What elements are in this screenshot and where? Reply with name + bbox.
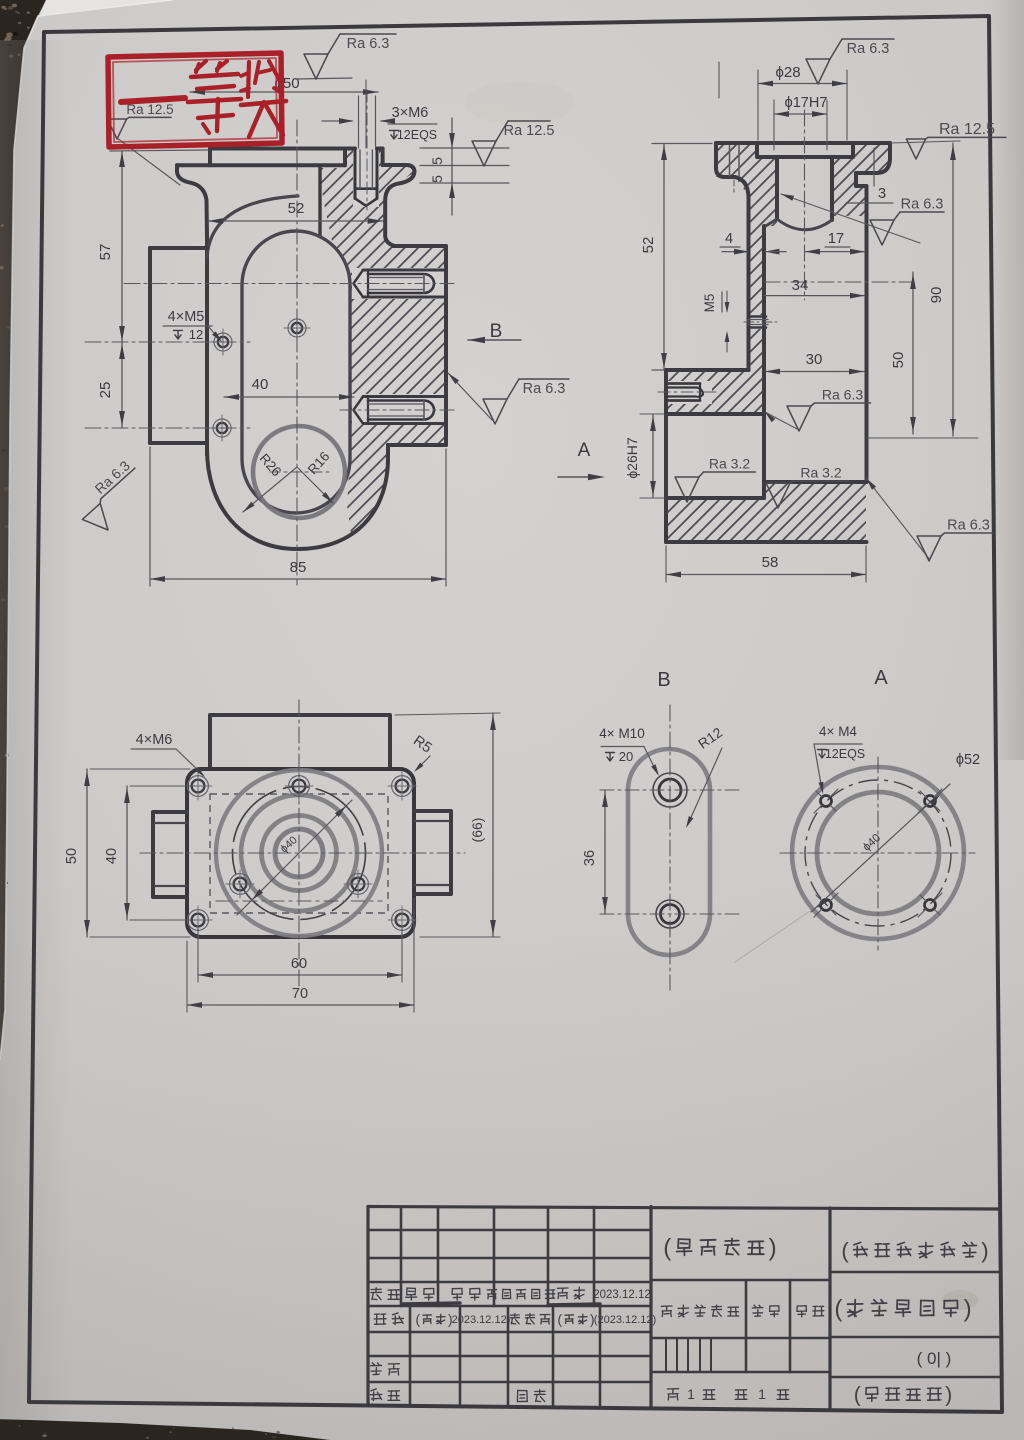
svg-text:Ra 6.3: Ra 6.3 (347, 36, 390, 52)
svg-text:ϕ26H7: ϕ26H7 (624, 437, 640, 479)
svg-text:36: 36 (582, 850, 598, 866)
svg-text:40: 40 (104, 848, 120, 864)
svg-text:20: 20 (619, 749, 633, 764)
svg-text:12: 12 (189, 327, 203, 342)
svg-text:5: 5 (429, 157, 445, 165)
svg-text:M5: M5 (702, 294, 717, 313)
svg-text:(: ( (841, 1238, 849, 1263)
svg-text:4× M4: 4× M4 (819, 724, 857, 739)
svg-text:3: 3 (878, 186, 886, 202)
svg-text:34: 34 (792, 277, 809, 294)
svg-text:4: 4 (725, 231, 733, 247)
svg-text:ϕ52: ϕ52 (956, 752, 980, 768)
svg-text:2023.12.12): 2023.12.12) (452, 1314, 511, 1326)
svg-text:17: 17 (828, 231, 844, 247)
svg-text:( 0| ): ( 0| ) (917, 1349, 952, 1368)
svg-text:58: 58 (762, 554, 779, 571)
svg-text:A: A (874, 667, 888, 689)
svg-text:90: 90 (928, 287, 945, 304)
svg-text:B: B (490, 321, 503, 342)
svg-text:50: 50 (64, 848, 80, 864)
svg-text:(: ( (854, 1384, 861, 1407)
svg-text:57: 57 (97, 244, 114, 261)
svg-text:Ra 12.5: Ra 12.5 (939, 121, 995, 138)
svg-text:Ra 6.3: Ra 6.3 (947, 518, 990, 534)
svg-text:4×M5: 4×M5 (168, 309, 205, 325)
svg-text:): ) (945, 1384, 952, 1407)
svg-text:4×M6: 4×M6 (136, 732, 173, 748)
svg-text:Ra 6.3: Ra 6.3 (901, 197, 944, 213)
svg-text:85: 85 (290, 559, 307, 576)
svg-text:Ra 6.3: Ra 6.3 (847, 41, 890, 57)
svg-text:3×M6: 3×M6 (392, 105, 429, 121)
svg-text:(: ( (834, 1296, 842, 1323)
svg-text:25: 25 (97, 382, 114, 399)
svg-text:ϕ17H7: ϕ17H7 (785, 95, 828, 111)
svg-text:2023.12.12: 2023.12.12 (593, 1289, 651, 1301)
svg-text:70: 70 (292, 986, 308, 1002)
svg-text:1: 1 (758, 1386, 766, 1402)
svg-text:(66): (66) (469, 818, 485, 843)
svg-text:Ra 6.3: Ra 6.3 (523, 381, 566, 397)
svg-text:4× M10: 4× M10 (599, 726, 644, 741)
svg-text:12EQS: 12EQS (825, 747, 865, 761)
svg-text:(2023.12.12): (2023.12.12) (594, 1314, 656, 1326)
svg-text:): ) (964, 1296, 972, 1323)
svg-text:1: 1 (687, 1386, 695, 1402)
svg-text:(: ( (557, 1312, 562, 1327)
svg-text:12EQS: 12EQS (397, 128, 437, 142)
svg-text:52: 52 (288, 200, 305, 217)
svg-text:(: ( (415, 1312, 420, 1327)
svg-text:(: ( (663, 1235, 671, 1262)
svg-text:B: B (657, 669, 670, 691)
svg-text:52: 52 (640, 237, 657, 254)
svg-text:60: 60 (291, 956, 307, 972)
svg-text:5: 5 (429, 175, 445, 183)
svg-text:Ra 12.5: Ra 12.5 (504, 123, 555, 139)
svg-text:A: A (578, 440, 591, 461)
svg-text:Ra 6.3: Ra 6.3 (822, 387, 863, 403)
svg-text:): ) (981, 1238, 988, 1263)
svg-text:): ) (769, 1235, 777, 1262)
svg-text:30: 30 (806, 351, 823, 368)
svg-text:ϕ28: ϕ28 (775, 64, 800, 81)
svg-text:Ra 3.2: Ra 3.2 (709, 456, 750, 472)
svg-text:50: 50 (890, 352, 907, 369)
svg-text:Ra 3.2: Ra 3.2 (800, 465, 841, 481)
svg-text:40: 40 (252, 376, 269, 393)
